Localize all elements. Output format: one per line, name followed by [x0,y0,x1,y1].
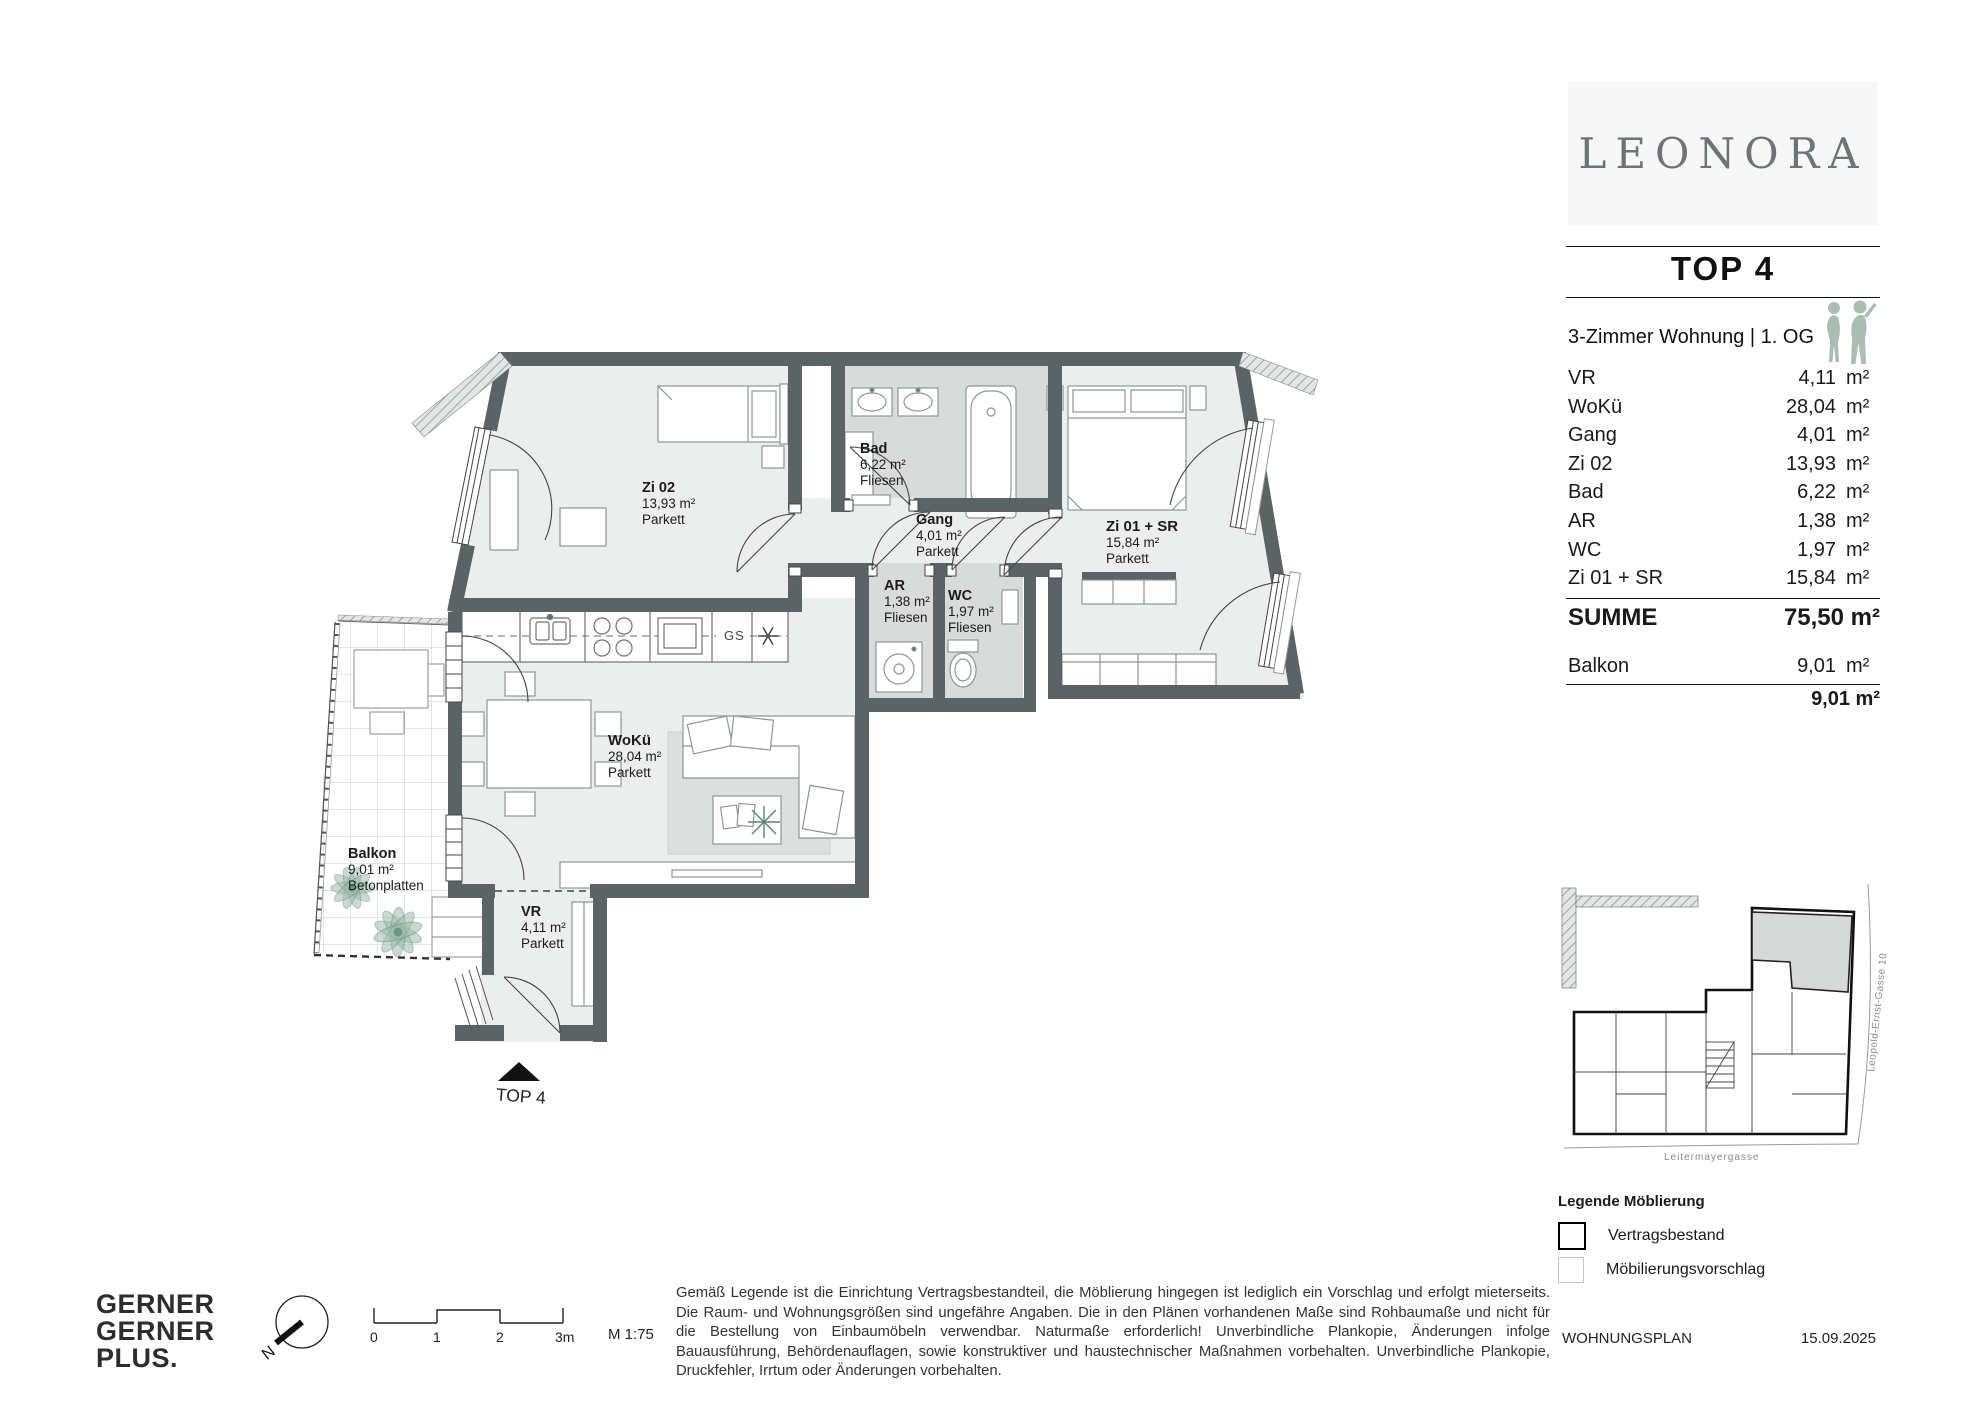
table-row: VR4,11m² [1568,367,1880,396]
document-date: 15.09.2025 [1801,1330,1876,1347]
svg-text:4,01 m²: 4,01 m² [916,528,962,543]
balcony-door-upper [446,632,462,702]
contract-stock-swatch [1558,1222,1586,1250]
divider [1566,684,1880,685]
svg-text:VR: VR [521,904,542,920]
oven-icon [658,618,702,654]
toilet-icon [948,640,978,687]
desk [560,508,606,546]
legend-item-label: Möbilierungsvorschlag [1606,1261,1765,1279]
svg-text:1: 1 [433,1329,441,1345]
floor-plan-drawing: Zi 02 13,93 m² Parkett Bad 6,22 m² Flies… [0,0,1550,1180]
bed-single [658,384,788,444]
disclaimer-text: Gemäß Legende ist die Einrichtung Vertra… [676,1284,1550,1382]
svg-text:2: 2 [496,1329,504,1345]
document-type: WOHNUNGSPLAN [1562,1330,1692,1347]
svg-text:Zi 02: Zi 02 [642,480,675,496]
balcony-row: Balkon 9,01 m² [1568,655,1880,684]
legend-item-label: Vertragsbestand [1608,1227,1725,1245]
sideboard [1082,572,1176,604]
document-footer: WOHNUNGSPLAN 15.09.2025 [1562,1330,1876,1347]
project-logo: LEONORA [1568,82,1878,225]
architect-logo: GERNER GERNER PLUS. [96,1291,215,1372]
unit-subtitle: 3-Zimmer Wohnung | 1. OG [1568,326,1814,349]
svg-text:Gang: Gang [916,512,953,528]
table-row: Gang4,01m² [1568,424,1880,453]
floorplan-sheet: Zi 02 13,93 m² Parkett Bad 6,22 m² Flies… [0,0,1985,1404]
svg-text:28,04 m²: 28,04 m² [608,749,662,764]
table-row: WC1,97m² [1568,539,1880,568]
street-label-bottom: Leitermayergasse [1664,1152,1759,1163]
wardrobe-zi01 [1062,654,1216,688]
svg-text:WoKü: WoKü [608,732,651,749]
dishwasher-label: GS [724,628,745,643]
svg-text:Parkett: Parkett [521,936,564,951]
svg-text:Fliesen: Fliesen [860,473,904,488]
table-row: WoKü28,04m² [1568,396,1880,425]
svg-text:13,93 m²: 13,93 m² [642,496,696,511]
nightstand [1190,386,1206,410]
total-row: SUMME 75,50 m² [1568,604,1880,633]
divider [1566,297,1880,298]
svg-text:AR: AR [884,578,905,594]
legend-item: Möbilierungsvorschlag [1558,1256,1888,1283]
wardrobe-zi02 [490,470,518,550]
bed-double [1068,386,1186,510]
svg-text:0: 0 [370,1329,378,1345]
north-compass-icon: N [258,1286,348,1376]
table-row: Zi 0213,93m² [1568,453,1880,482]
nightstand [762,446,784,468]
divider [1566,246,1880,247]
balcony [312,615,452,965]
sink-icon [530,615,570,645]
svg-text:4,11 m²: 4,11 m² [521,920,566,935]
table-row: Zi 01 + SR15,84m² [1568,567,1880,596]
entrance-label: TOP 4 [495,1084,546,1107]
entrance-arrow-icon [498,1062,540,1081]
unit-title: TOP 4 [1566,250,1880,288]
scale-ratio: M 1:75 [608,1326,654,1343]
divider [1566,598,1880,599]
scale-bar: 0 1 2 3m [362,1302,592,1358]
svg-text:Betonplatten: Betonplatten [348,878,424,893]
balcony-total: 9,01 m² [1568,688,1880,711]
balcony-door-lower [446,815,462,881]
svg-text:3m: 3m [555,1329,574,1345]
legend-item: Vertragsbestand [1558,1222,1888,1249]
svg-text:Zi 01 + SR: Zi 01 + SR [1106,518,1178,535]
table-row: Bad6,22m² [1568,481,1880,510]
washing-machine-icon [876,642,922,692]
svg-text:1,38 m²: 1,38 m² [884,594,930,609]
legend-title: Legende Möblierung [1558,1193,1888,1210]
svg-text:1,97 m²: 1,97 m² [948,604,994,619]
svg-text:15,84 m²: 15,84 m² [1106,535,1160,550]
shaft [432,897,486,957]
key-plan: Leitermayergasse Leopold-Ernst-Gasse 10 [1556,872,1926,1177]
room-table: VR4,11m² WoKü28,04m² Gang4,01m² Zi 0213,… [1568,367,1880,596]
svg-text:Bad: Bad [860,441,887,457]
svg-text:Parkett: Parkett [916,544,959,559]
bath-mat [852,495,890,505]
furnishing-legend: Legende Möblierung Vertragsbestand Möbil… [1558,1193,1888,1290]
project-logo-text: LEONORA [1578,129,1867,178]
svg-text:N: N [259,1343,279,1364]
svg-text:9,01 m²: 9,01 m² [348,862,394,877]
entrance-marker: TOP 4 [495,1062,546,1108]
coffee-table [713,796,781,844]
svg-text:Parkett: Parkett [1106,551,1149,566]
svg-text:Balkon: Balkon [348,846,396,862]
svg-text:Fliesen: Fliesen [884,610,928,625]
wardrobe-vr [572,902,596,1006]
svg-text:WC: WC [948,588,973,604]
residents-icon [1822,300,1880,366]
svg-text:6,22 m²: 6,22 m² [860,457,906,472]
plant-icon [748,806,780,838]
svg-text:Parkett: Parkett [608,765,651,780]
furnishing-proposal-swatch [1558,1257,1584,1283]
wc-sink [1002,590,1018,624]
table-row: AR1,38m² [1568,510,1880,539]
svg-text:Parkett: Parkett [642,512,685,527]
svg-text:Fliesen: Fliesen [948,620,992,635]
